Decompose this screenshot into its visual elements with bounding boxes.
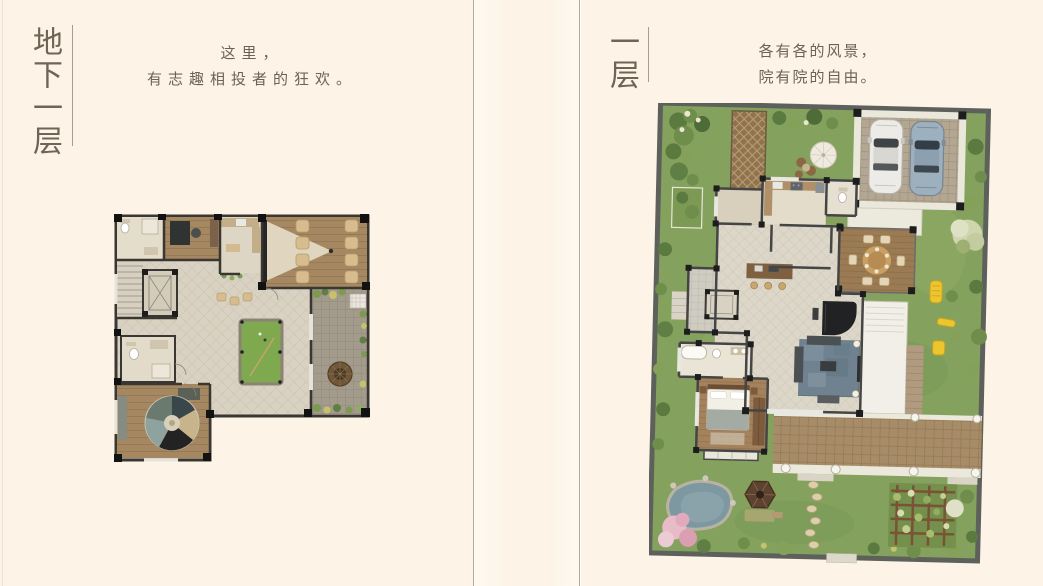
slide xyxy=(930,281,943,303)
vanity xyxy=(144,247,158,255)
basement-bathroom-1 xyxy=(117,217,163,259)
garden-gate xyxy=(826,553,856,563)
bar-sink xyxy=(236,219,246,226)
basement-elevator xyxy=(142,269,178,317)
terrace xyxy=(772,410,982,485)
projector xyxy=(329,249,333,253)
home-elevator xyxy=(704,289,739,320)
terrace-steps xyxy=(797,473,833,481)
white-car xyxy=(866,119,905,194)
vanity xyxy=(150,340,168,349)
porch xyxy=(716,188,763,224)
sofa xyxy=(118,396,127,440)
first-floor-plan xyxy=(649,103,991,565)
round-rug xyxy=(145,396,199,450)
first-floor-title: 一层 xyxy=(604,26,638,92)
left-edge-line xyxy=(2,0,3,586)
terrace-column xyxy=(909,467,918,476)
powder-room xyxy=(826,180,857,216)
toilet xyxy=(121,223,129,233)
page-spine-highlight xyxy=(475,0,579,586)
shower xyxy=(142,219,158,234)
home-theater-room xyxy=(262,217,367,287)
terrace-column xyxy=(781,464,790,473)
flat-roof-deck xyxy=(860,301,908,414)
page-divider-right xyxy=(579,0,581,586)
coffee-table xyxy=(820,361,836,371)
page-divider-left xyxy=(473,0,475,586)
terrace-column xyxy=(831,465,840,474)
basement-stairs xyxy=(117,260,143,318)
master-bathroom xyxy=(679,343,752,379)
dining-pavilion xyxy=(835,224,917,294)
living-room xyxy=(793,335,862,404)
basement-floor-title: 地下一层 xyxy=(27,26,61,158)
basement-bathroom-2 xyxy=(121,336,175,382)
terrace-steps xyxy=(947,477,977,485)
blue-car xyxy=(907,121,946,196)
shelf xyxy=(210,219,218,247)
first-floor-slogan-line2: 院有院的自由。 xyxy=(733,65,903,91)
vegetable-garden xyxy=(888,483,965,549)
first-floor-title-rule xyxy=(648,27,649,82)
side-paver-path xyxy=(905,345,924,414)
basement-slogan-line2: 有志趣相投者的狂欢。 xyxy=(128,67,376,93)
basement-slogan-line1: 这里， xyxy=(128,41,376,67)
sunken-courtyard xyxy=(311,289,367,415)
terrace-column xyxy=(971,468,980,477)
desk xyxy=(170,221,190,245)
toilet xyxy=(130,349,139,360)
toilet xyxy=(712,349,720,358)
projector-screen xyxy=(263,220,267,282)
spring-rider xyxy=(933,341,945,355)
kitchen xyxy=(762,179,827,227)
basement-floor-plan xyxy=(114,214,370,462)
basement-family-room xyxy=(117,384,209,458)
chair xyxy=(191,228,201,238)
parking-pad xyxy=(851,109,966,211)
basement-title-rule xyxy=(72,25,73,146)
sofa xyxy=(807,336,841,346)
sofa xyxy=(794,346,804,382)
basement-slogan: 这里， 有志趣相投者的狂欢。 xyxy=(128,41,376,93)
basement-den xyxy=(163,217,219,259)
first-floor-slogan-line1: 各有各的风景， xyxy=(733,39,903,65)
fire-pit-table xyxy=(328,362,352,386)
brochure-page: 地下一层 这里， 有志趣相投者的狂欢。 xyxy=(0,0,1043,586)
basement-bar xyxy=(219,217,261,281)
first-floor-slogan: 各有各的风景， 院有院的自由。 xyxy=(733,39,903,91)
billiard-table xyxy=(240,320,282,384)
bathtub xyxy=(681,346,706,360)
master-bedroom xyxy=(696,377,768,452)
